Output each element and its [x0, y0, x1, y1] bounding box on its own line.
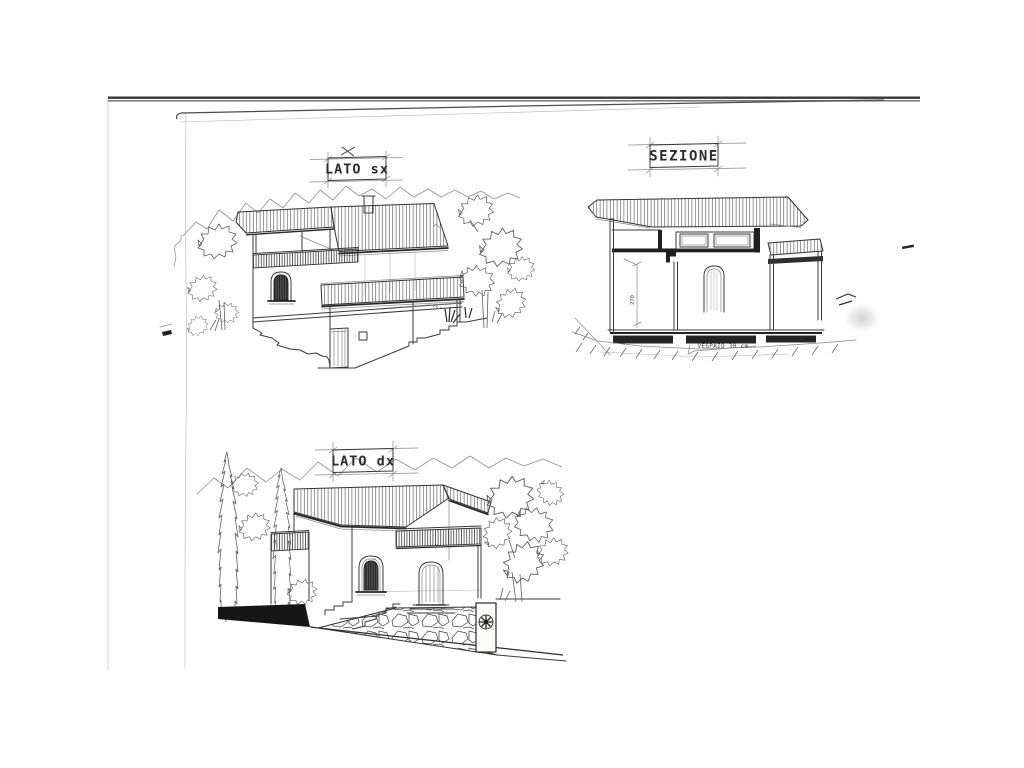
terrace-posts [330, 300, 460, 344]
vespaio-note-group: VESPAIO 30 cm [688, 343, 756, 354]
terrace-parapet [768, 256, 823, 264]
sezione-drawing: SEZIONE [572, 136, 856, 361]
x-annotation-mark [341, 147, 355, 156]
stray-scribble [836, 294, 856, 305]
lato-sx-drawing: LATO sx [183, 147, 535, 368]
lato-sx-label: LATO sx [325, 162, 389, 178]
stray-dash-mark [902, 244, 914, 249]
lato-sx-label-box: LATO sx [310, 151, 402, 188]
blueprint-scan: LATO sx [0, 0, 1024, 768]
height-dimension: 270 [630, 295, 636, 305]
arched-window-dx [356, 556, 386, 595]
middle-wall [674, 262, 678, 330]
roof-left-band [236, 207, 334, 233]
sezione-label: SEZIONE [649, 149, 719, 165]
lato-dx-label: LATO dx [331, 454, 395, 470]
arched-window [268, 272, 295, 304]
lato-dx-label-box: LATO dx [315, 441, 418, 482]
wall-pillar [476, 603, 496, 652]
vespaio-note: VESPAIO 30 cm [698, 343, 749, 350]
right-balcony-rail [396, 526, 481, 598]
scan-top-edge [108, 97, 920, 99]
sheet-left-edge [185, 113, 187, 667]
height-dimension-line: 270 [624, 259, 641, 328]
scanned-page: LATO sx [0, 0, 1024, 768]
left-balcony-rail [271, 532, 309, 551]
section-structure [608, 219, 824, 344]
section-roof [588, 197, 808, 227]
grass-tufts [445, 307, 472, 323]
sezione-label-box: SEZIONE [628, 136, 746, 177]
right-cut-wall [754, 228, 760, 253]
right-tree-cluster [454, 195, 535, 328]
left-tree-cluster [185, 224, 242, 338]
scan-borders [108, 96, 920, 670]
roof-right-wing [443, 485, 491, 513]
foundation-block [613, 336, 673, 344]
pencil-smudge [844, 303, 880, 333]
roof-main-slope [331, 204, 448, 252]
margin-mark [162, 330, 172, 336]
ceiling-beam [612, 249, 669, 253]
basement-door [330, 328, 348, 368]
dark-road [218, 604, 310, 627]
terrain-stairs [253, 307, 487, 368]
margin-scribble [174, 235, 181, 266]
balcony-railing [253, 249, 358, 268]
terrace-roof-section [768, 239, 823, 255]
stone-wall [318, 607, 497, 655]
basement-window [359, 332, 367, 340]
floor-band [253, 303, 462, 322]
arched-niche [704, 266, 724, 312]
arched-door [416, 562, 446, 605]
sheet-top-edge-echo [180, 107, 700, 122]
sheet-top-edge [177, 100, 884, 119]
foundation-block [766, 336, 816, 343]
left-cut-wall [610, 219, 614, 332]
clerestory-windows [676, 232, 754, 249]
lato-dx-drawing: LATO dx [197, 441, 568, 661]
